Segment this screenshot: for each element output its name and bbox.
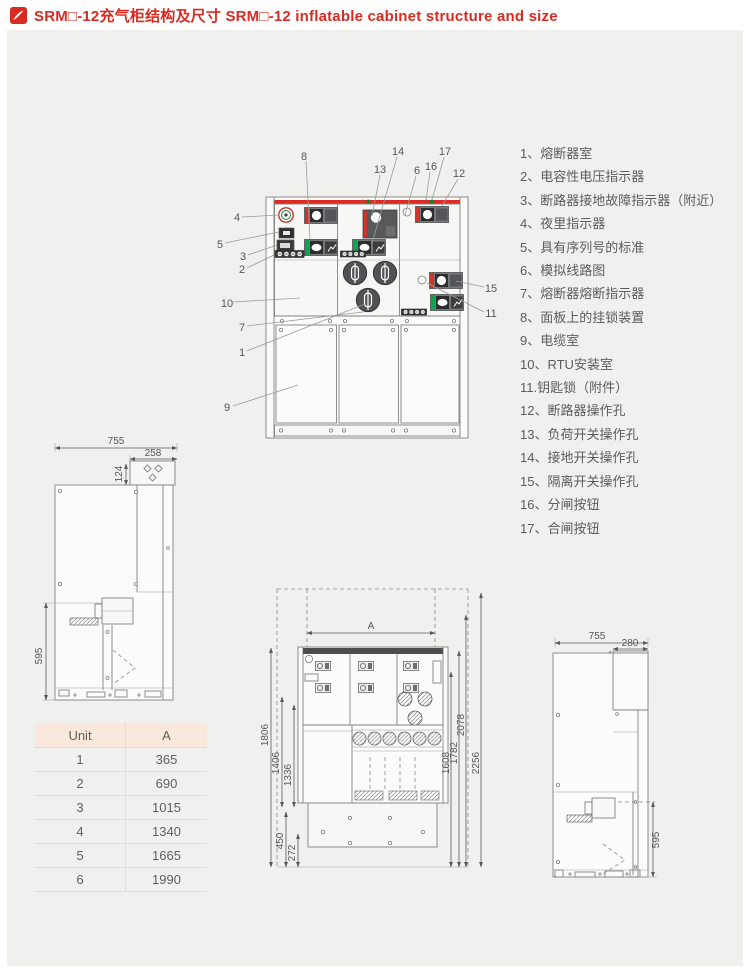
- callout-1: 1: [239, 347, 245, 359]
- terminal-strip: [340, 251, 365, 257]
- legend-item: 8、面板上的挂锁装置: [520, 306, 746, 329]
- side-view-right-diagram: 755 280 470 595: [545, 622, 750, 917]
- cable-bushing: [428, 732, 441, 745]
- table-row: 2 690: [35, 772, 207, 796]
- catalog-page: SRM□-12充气柜结构及尺寸 SRM□-12 inflatable cabin…: [0, 0, 750, 977]
- terminal-strip: [275, 250, 304, 257]
- front-view-diagram: 8 13 14 6 16 17 12 4 5 3 2 10 7 1 9 15 1…: [200, 140, 510, 450]
- legend-item: 6、模拟线路图: [520, 259, 746, 282]
- dim-450-label: 450: [275, 832, 286, 849]
- table-header-row: Unit A: [35, 723, 207, 748]
- page-title: SRM□-12充气柜结构及尺寸 SRM□-12 inflatable cabin…: [34, 5, 558, 26]
- dim-1336-label: 1336: [283, 763, 294, 786]
- dim-2256-label: 2256: [471, 751, 482, 774]
- voltage-indicator: [279, 208, 293, 222]
- legend-item: 1、熔断器室: [520, 142, 746, 165]
- legend-item: 11.钥匙锁（附件）: [520, 376, 746, 399]
- callout-14: 14: [392, 146, 404, 158]
- dim-1782-label: 1782: [449, 741, 460, 764]
- cell-a: 1340: [126, 820, 208, 844]
- callout-7: 7: [239, 322, 245, 334]
- legend-item: 3、断路器接地故障指示器（附近）: [520, 189, 746, 212]
- dim-2078-label: 2078: [456, 713, 467, 736]
- cabinet-profile: [553, 653, 648, 877]
- legend-item: 10、RTU安装室: [520, 353, 746, 376]
- brand-icon: [10, 7, 27, 24]
- dim-595-label: 595: [34, 647, 45, 664]
- legend-item: 2、电容性电压指示器: [520, 165, 746, 188]
- fuse-bushing: [408, 711, 422, 725]
- cable-bushing: [353, 732, 366, 745]
- vent-strip: [70, 618, 98, 625]
- table-row: 1 365: [35, 748, 207, 772]
- cable-room-door: [339, 325, 399, 423]
- cable-bushing: [413, 732, 426, 745]
- isolator-operator-module: [430, 273, 463, 289]
- legend-item: 14、接地开关操作孔: [520, 446, 746, 469]
- callout-2: 2: [239, 264, 245, 276]
- cell-a: 365: [126, 748, 208, 772]
- page-header: SRM□-12充气柜结构及尺寸 SRM□-12 inflatable cabin…: [10, 5, 558, 26]
- callout-10: 10: [221, 298, 233, 310]
- table-row: 5 1665: [35, 844, 207, 868]
- vent-strip: [567, 815, 592, 822]
- fuse-bushing: [398, 692, 412, 706]
- unit-width-table: Unit A 1 365 2 690 3 1015 4 1340 5 1665 …: [35, 723, 207, 892]
- legend-item: 9、电缆室: [520, 329, 746, 352]
- callout-5: 5: [217, 239, 223, 251]
- terminal-strip: [401, 309, 426, 315]
- cell-unit: 3: [35, 796, 126, 820]
- cabinet-base: [275, 425, 461, 436]
- red-indicator-dot: [361, 200, 365, 204]
- cell-a: 1665: [126, 844, 208, 868]
- fuse-port: [373, 261, 396, 284]
- legend-item: 7、熔断器熔断指示器: [520, 282, 746, 305]
- callout-9: 9: [224, 402, 230, 414]
- callout-3: 3: [240, 251, 246, 263]
- switch-operator-module: [431, 295, 464, 311]
- green-indicator-dot: [430, 200, 434, 204]
- fuse-port: [356, 288, 379, 311]
- cable-bushing: [368, 732, 381, 745]
- key-lock-hole: [418, 276, 426, 284]
- legend-list: 1、熔断器室 2、电容性电压指示器 3、断路器接地故障指示器（附近） 4、夜里指…: [520, 142, 746, 540]
- cell-unit: 1: [35, 748, 126, 772]
- front-dimension-diagram: A: [255, 585, 500, 925]
- dim-272-label: 272: [287, 844, 298, 861]
- cable-room-door: [401, 325, 459, 423]
- dim-124-label: 124: [114, 465, 125, 482]
- dim-1406-label: 1406: [271, 751, 282, 774]
- legend-item: 13、负荷开关操作孔: [520, 423, 746, 446]
- operating-mechanism: [592, 798, 615, 818]
- cell-a: 690: [126, 772, 208, 796]
- dim-1806-label: 1806: [260, 723, 271, 746]
- callout-12: 12: [453, 168, 465, 180]
- table-row: 4 1340: [35, 820, 207, 844]
- cell-unit: 2: [35, 772, 126, 796]
- legend-item: 4、夜里指示器: [520, 212, 746, 235]
- cable-bushing: [383, 732, 396, 745]
- dim-755-label: 755: [108, 436, 125, 447]
- dim-595-label: 595: [651, 831, 662, 848]
- callout-15: 15: [485, 283, 497, 295]
- green-indicator-dot: [367, 200, 371, 204]
- col-header-a: A: [126, 723, 208, 748]
- cell-unit: 5: [35, 844, 126, 868]
- dim-280-label: 280: [622, 638, 639, 649]
- cell-unit: 6: [35, 868, 126, 892]
- cable-bushing: [398, 732, 411, 745]
- legend-item: 12、断路器操作孔: [520, 399, 746, 422]
- legend-item: 15、隔离开关操作孔: [520, 470, 746, 493]
- dim-a-label: A: [368, 621, 375, 632]
- base-plinth: [308, 803, 437, 847]
- fuse-port: [343, 261, 366, 284]
- legend-item: 16、分闸按钮: [520, 493, 746, 516]
- legend-item: 5、具有序列号的标准: [520, 236, 746, 259]
- cell-unit: 4: [35, 820, 126, 844]
- table-row: 6 1990: [35, 868, 207, 892]
- breaker-operator-module: [416, 207, 449, 223]
- callout-13: 13: [374, 164, 386, 176]
- side-view-left-diagram: 755 258 124: [35, 428, 235, 718]
- callout-16: 16: [425, 161, 437, 173]
- legend-item: 17、合闸按钮: [520, 517, 746, 540]
- table-row: 3 1015: [35, 796, 207, 820]
- dim-755-label: 755: [589, 631, 606, 642]
- fuse-bushing: [418, 692, 432, 706]
- switch-operator-module: [305, 240, 338, 256]
- callout-11: 11: [485, 308, 496, 320]
- cell-a: 1015: [126, 796, 208, 820]
- callout-8: 8: [301, 151, 307, 163]
- cell-a: 1990: [126, 868, 208, 892]
- callout-17: 17: [439, 146, 451, 158]
- red-indicator-dot: [424, 200, 428, 204]
- dim-258-label: 258: [145, 448, 162, 459]
- cabinet-profile: [55, 485, 173, 700]
- col-header-unit: Unit: [35, 723, 126, 748]
- callout-6: 6: [414, 165, 420, 177]
- cable-room-door: [276, 325, 337, 423]
- callout-4: 4: [234, 212, 240, 224]
